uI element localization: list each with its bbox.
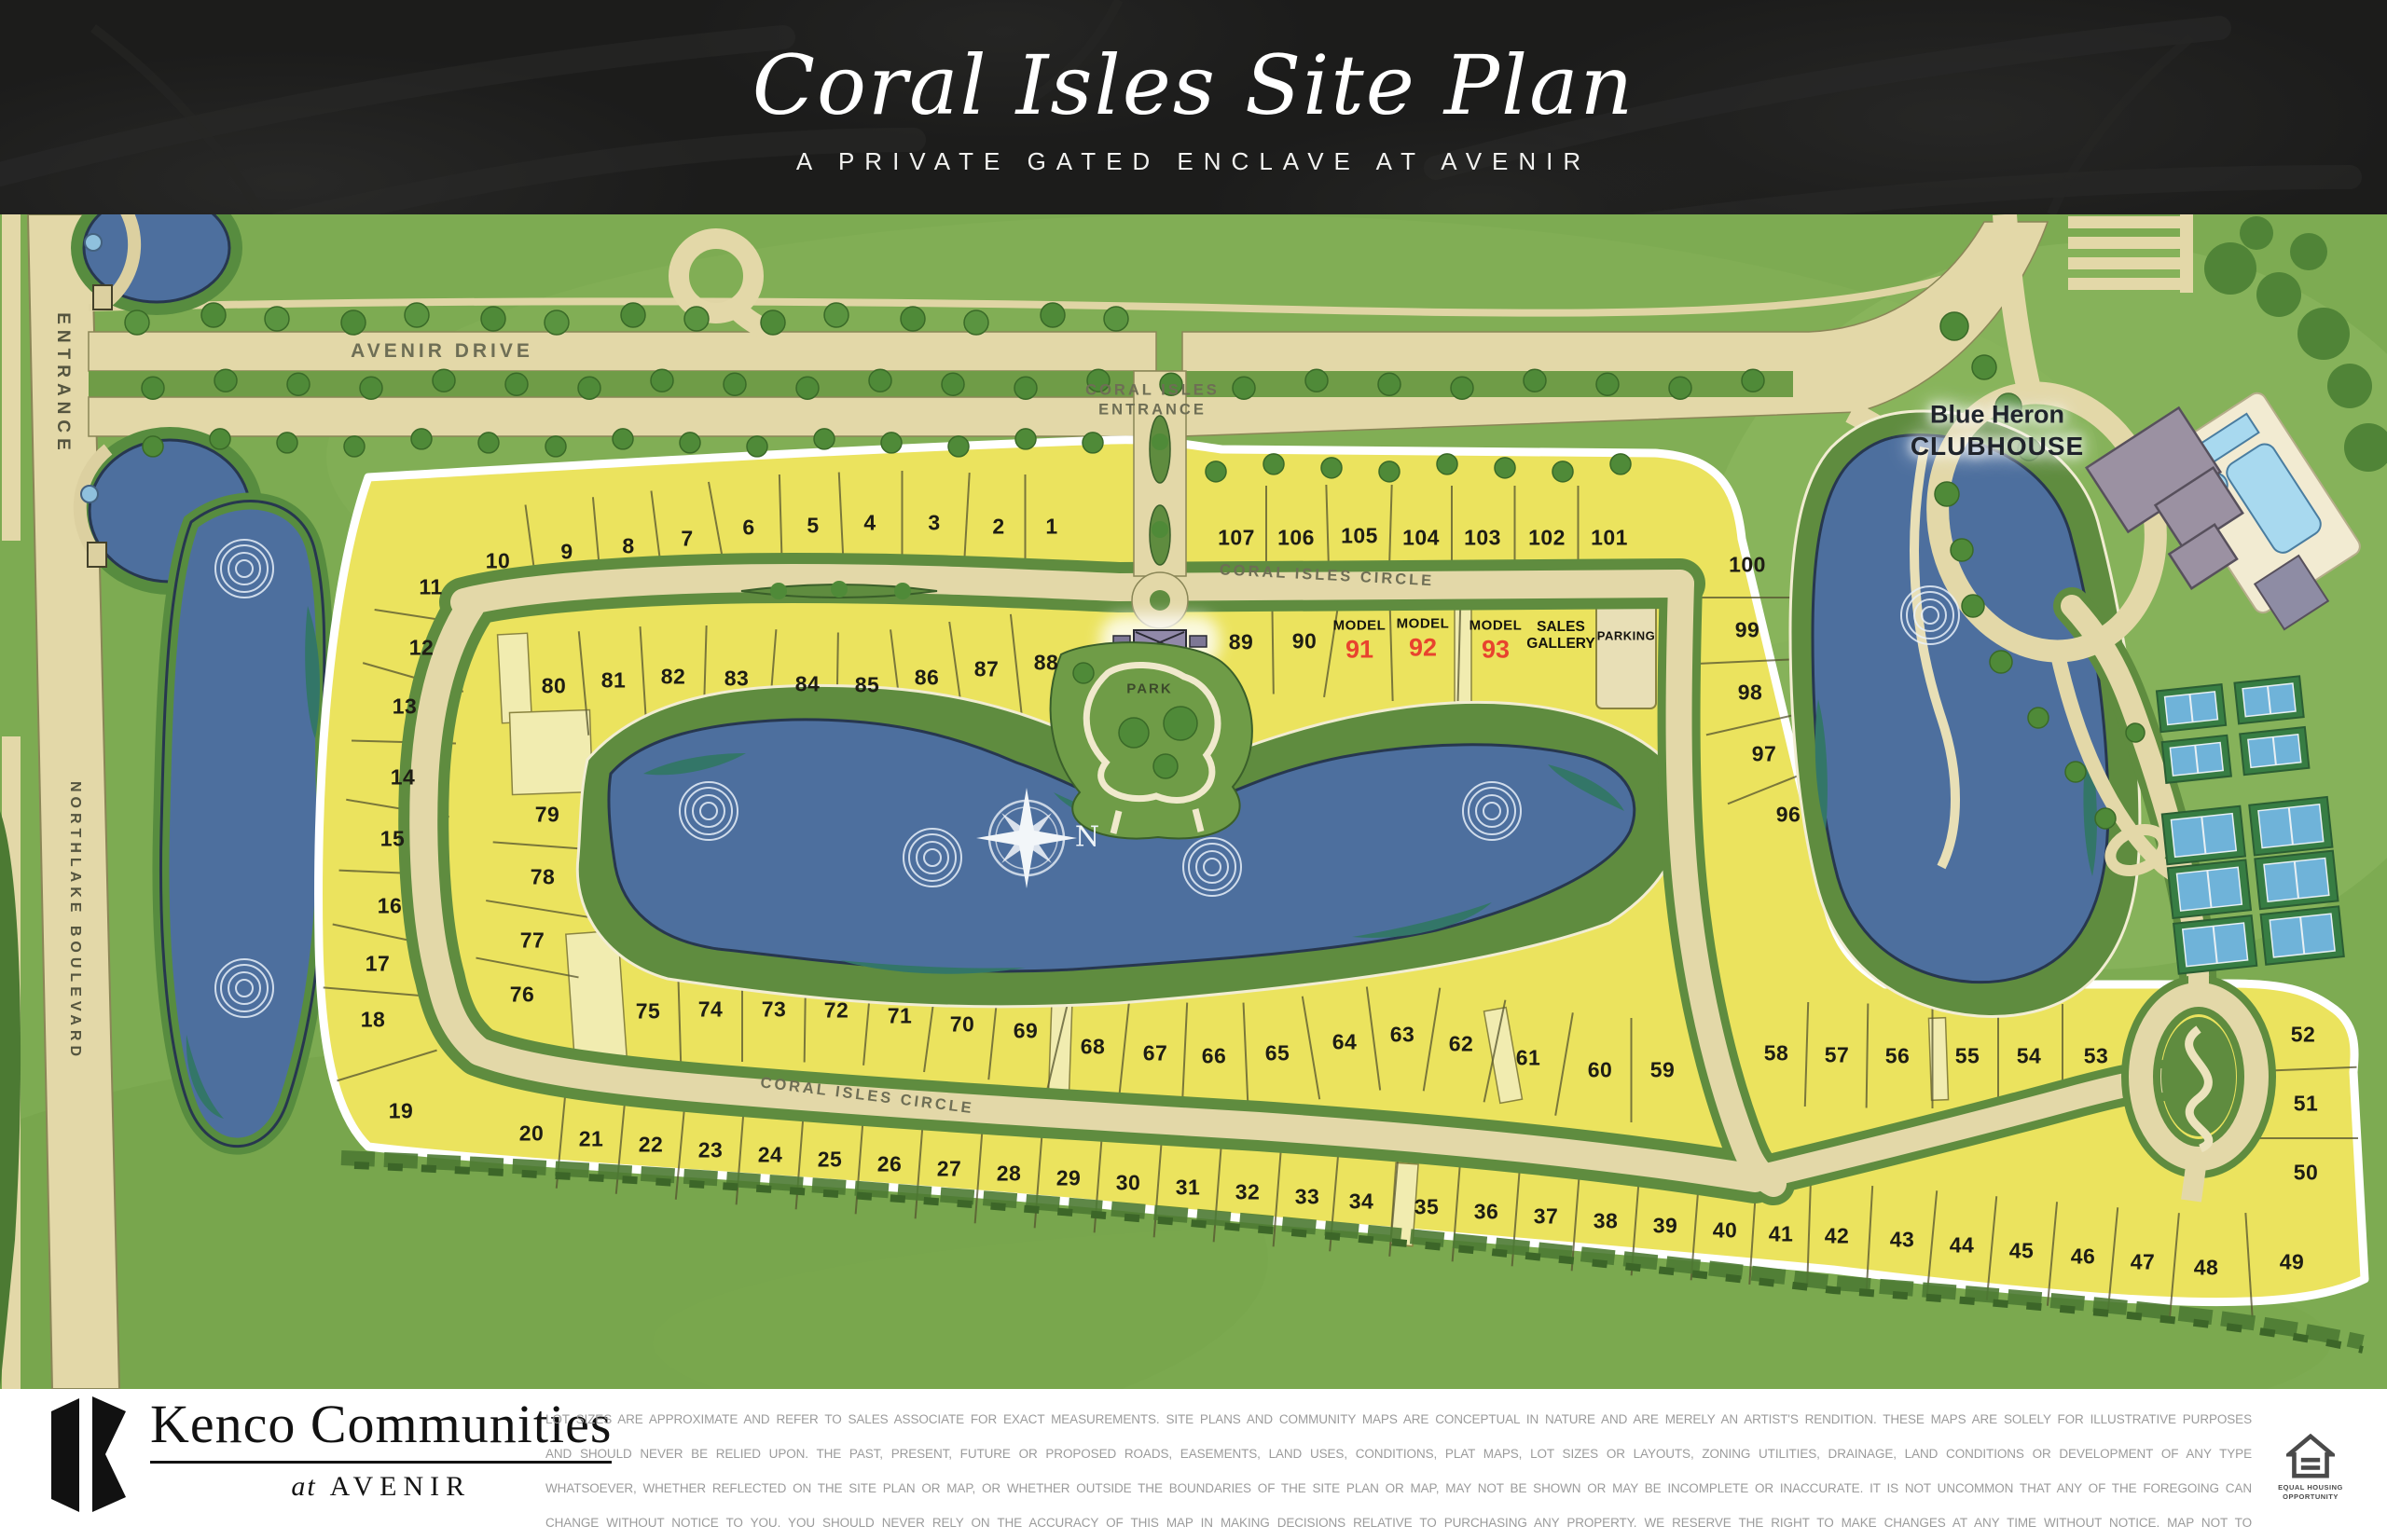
kenco-logo-icon: [51, 1396, 126, 1512]
site-plan-page: Coral Isles Site Plan A PRIVATE GATED EN…: [0, 0, 2387, 1540]
footer: Kenco Communities atAVENIR LOT SIZES ARE…: [0, 1389, 2387, 1540]
legal-disclaimer: LOT SIZES ARE APPROXIMATE AND REFER TO S…: [545, 1402, 2252, 1540]
site-plan-map: ENTRANCENORTHLAKE BOULEVARDAVENIR DRIVEC…: [0, 214, 2387, 1389]
site-plan-header: Coral Isles Site Plan A PRIVATE GATED EN…: [0, 0, 2387, 214]
page-subtitle: A PRIVATE GATED ENCLAVE AT AVENIR: [796, 147, 1591, 176]
parking-lot: [1596, 602, 1656, 708]
east-lake: [1790, 411, 2140, 1017]
map-illustration: [0, 214, 2387, 1389]
page-title: Coral Isles Site Plan: [752, 45, 1635, 127]
equal-housing-text: EQUAL HOUSING OPPORTUNITY: [2273, 1483, 2348, 1502]
kenco-brand: Kenco Communities atAVENIR: [51, 1396, 612, 1512]
equal-housing-icon: [2286, 1434, 2335, 1478]
park-area: [1051, 642, 1252, 838]
brand-avenir: AVENIR: [330, 1471, 471, 1502]
brand-subtitle: atAVENIR: [291, 1471, 471, 1503]
brand-name: Kenco Communities: [150, 1396, 612, 1464]
equal-housing-logo: EQUAL HOUSING OPPORTUNITY: [2273, 1434, 2348, 1502]
cul-de-sac: [2141, 953, 2256, 1201]
brand-at: at: [291, 1471, 316, 1502]
